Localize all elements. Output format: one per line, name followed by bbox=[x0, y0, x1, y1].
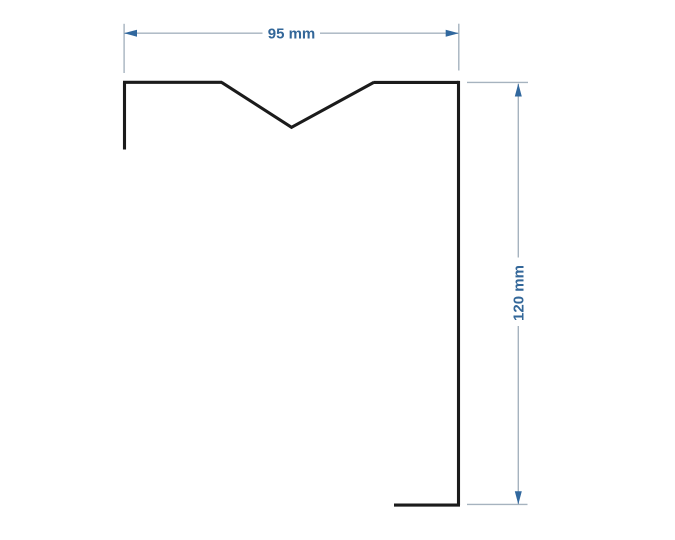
svg-text:95 mm: 95 mm bbox=[268, 25, 316, 42]
svg-text:120 mm: 120 mm bbox=[511, 265, 528, 321]
